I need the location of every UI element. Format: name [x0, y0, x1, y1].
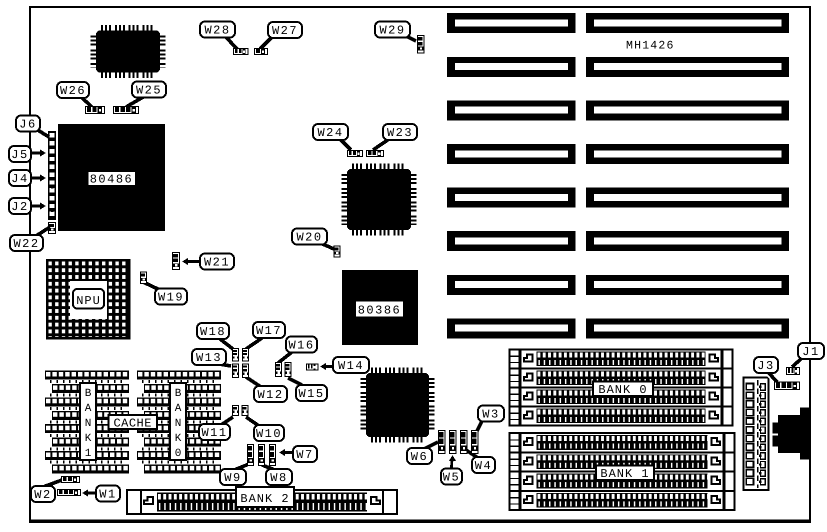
svg-text:BANK 1: BANK 1	[600, 467, 649, 481]
svg-text:N: N	[85, 418, 92, 430]
svg-text:J2: J2	[11, 200, 28, 214]
svg-text:W10: W10	[256, 427, 282, 441]
svg-text:0: 0	[175, 448, 182, 460]
svg-text:W13: W13	[196, 351, 222, 365]
svg-text:N: N	[175, 418, 182, 430]
svg-text:B: B	[175, 388, 182, 400]
svg-text:NPU: NPU	[76, 294, 101, 308]
svg-text:W27: W27	[272, 24, 298, 38]
svg-text:W11: W11	[201, 426, 227, 440]
svg-text:A: A	[175, 403, 182, 415]
svg-text:W26: W26	[60, 84, 86, 98]
svg-text:J3: J3	[757, 359, 774, 373]
svg-text:1: 1	[85, 448, 92, 460]
svg-text:80486: 80486	[90, 173, 134, 187]
svg-text:W8: W8	[270, 471, 287, 485]
svg-text:W25: W25	[136, 84, 162, 98]
svg-text:W6: W6	[411, 450, 428, 464]
svg-text:W18: W18	[200, 325, 226, 339]
svg-text:CACHE: CACHE	[113, 417, 152, 431]
svg-text:W3: W3	[482, 408, 499, 422]
svg-text:K: K	[175, 433, 182, 445]
svg-text:W23: W23	[387, 126, 413, 140]
svg-text:W5: W5	[443, 471, 460, 485]
svg-text:W9: W9	[224, 471, 241, 485]
svg-text:W14: W14	[338, 359, 364, 373]
svg-text:W12: W12	[257, 388, 283, 402]
svg-text:W21: W21	[204, 256, 230, 270]
svg-text:J6: J6	[19, 118, 36, 132]
svg-text:W4: W4	[475, 459, 492, 473]
svg-text:W1: W1	[99, 488, 116, 502]
svg-text:W16: W16	[288, 339, 314, 353]
svg-text:W22: W22	[13, 237, 39, 251]
svg-text:J1: J1	[802, 345, 819, 359]
svg-text:J4: J4	[11, 172, 28, 186]
svg-text:J5: J5	[11, 148, 28, 162]
svg-text:W28: W28	[204, 24, 230, 38]
svg-text:W17: W17	[256, 324, 282, 338]
svg-text:W29: W29	[379, 24, 405, 38]
svg-text:B: B	[85, 388, 92, 400]
svg-text:W15: W15	[298, 387, 324, 401]
svg-text:K: K	[85, 433, 92, 445]
svg-text:W7: W7	[296, 448, 313, 462]
svg-text:W20: W20	[296, 231, 322, 245]
svg-text:BANK 0: BANK 0	[598, 383, 647, 397]
svg-text:A: A	[85, 403, 92, 415]
svg-text:80386: 80386	[358, 304, 402, 318]
svg-text:W24: W24	[317, 126, 343, 140]
svg-text:MH1426: MH1426	[626, 40, 675, 53]
svg-text:W2: W2	[34, 488, 51, 502]
svg-text:W19: W19	[158, 291, 184, 305]
svg-text:BANK 2: BANK 2	[240, 492, 289, 506]
